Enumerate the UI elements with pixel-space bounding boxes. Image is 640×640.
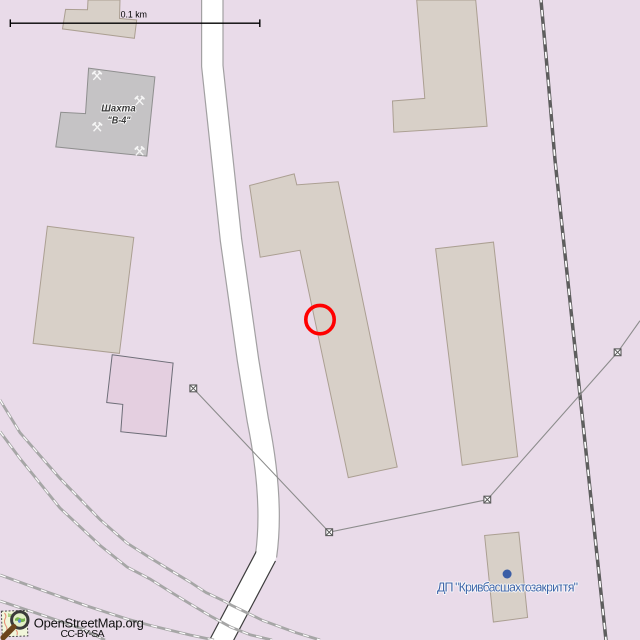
svg-text:0.1 km: 0.1 km <box>121 10 147 20</box>
svg-text:CC-BY-SA: CC-BY-SA <box>61 628 105 640</box>
svg-text:ДП "Кривбасшахтозакриття": ДП "Кривбасшахтозакриття" <box>437 581 578 595</box>
svg-text:Шахта: Шахта <box>101 103 136 115</box>
svg-text:"В-4": "В-4" <box>108 115 132 127</box>
